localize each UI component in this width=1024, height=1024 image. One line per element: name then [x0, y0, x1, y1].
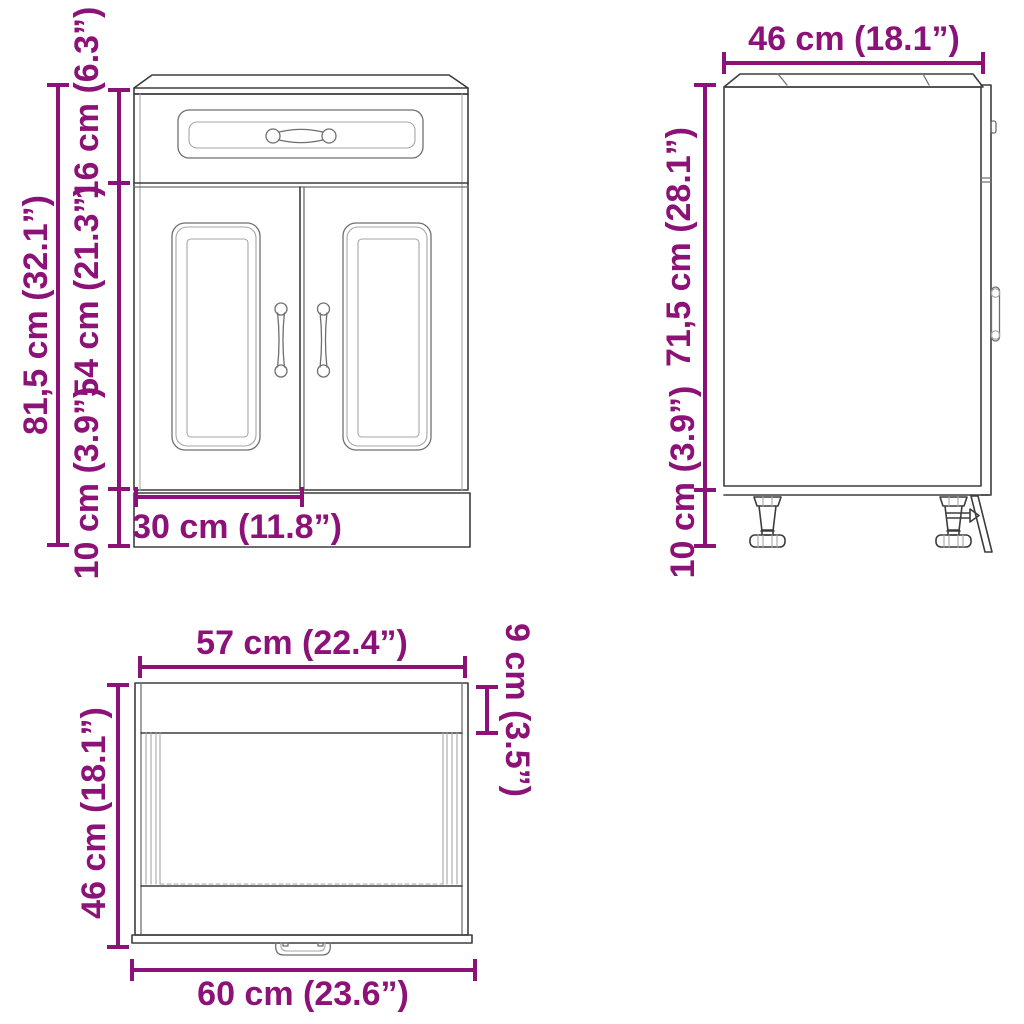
side-front-leg	[750, 497, 785, 547]
front-countertop	[134, 75, 468, 94]
front-door-width-label: 30 cm (11.8”)	[132, 510, 342, 544]
side-body-height-label: 71,5 cm (28.1”)	[662, 127, 696, 367]
front-view-drawing	[134, 75, 470, 547]
front-leg-height-label: 10 cm (3.9”)	[70, 387, 104, 580]
side-rear-leg	[936, 497, 971, 547]
front-drawer-height-label: 16 cm (6.3”)	[70, 7, 104, 200]
front-drawer	[178, 110, 423, 158]
side-body	[724, 87, 981, 486]
side-depth-label: 46 cm (18.1”)	[748, 22, 960, 56]
side-handle-profile	[991, 287, 999, 341]
dim-top-back-depth-line	[476, 687, 498, 733]
top-inner-width-label: 57 cm (22.4”)	[196, 626, 408, 660]
side-front-panel	[981, 85, 1000, 495]
cabinet-dimension-diagram: 81,5 cm (32.1”) 16 cm (6.3”) 54 cm (21.3…	[0, 0, 1024, 1024]
left-door-handle	[275, 303, 287, 377]
top-outer-width-label: 60 cm (23.6”)	[197, 977, 409, 1011]
top-depth-label: 46 cm (18.1”)	[77, 707, 111, 919]
side-plinth-board	[947, 496, 992, 552]
right-door-handle	[318, 303, 330, 377]
top-view-drawing	[132, 683, 472, 955]
top-side-panels	[146, 733, 457, 884]
dim-front-section-heights-line	[108, 90, 130, 546]
side-countertop	[724, 74, 983, 87]
top-back-depth-label: 9 cm (3.5”)	[500, 623, 534, 797]
front-total-height-label: 81,5 cm (32.1”)	[19, 195, 53, 435]
front-door-height-label: 54 cm (21.3”)	[70, 185, 104, 397]
top-body	[135, 683, 468, 935]
top-handle	[276, 943, 331, 955]
drawer-handle	[266, 129, 336, 143]
front-body	[134, 94, 468, 490]
top-front-lip	[132, 935, 472, 943]
side-view-drawing	[724, 74, 1000, 552]
side-leg-height-label: 10 cm (3.9”)	[666, 386, 700, 579]
front-doors	[172, 187, 431, 490]
